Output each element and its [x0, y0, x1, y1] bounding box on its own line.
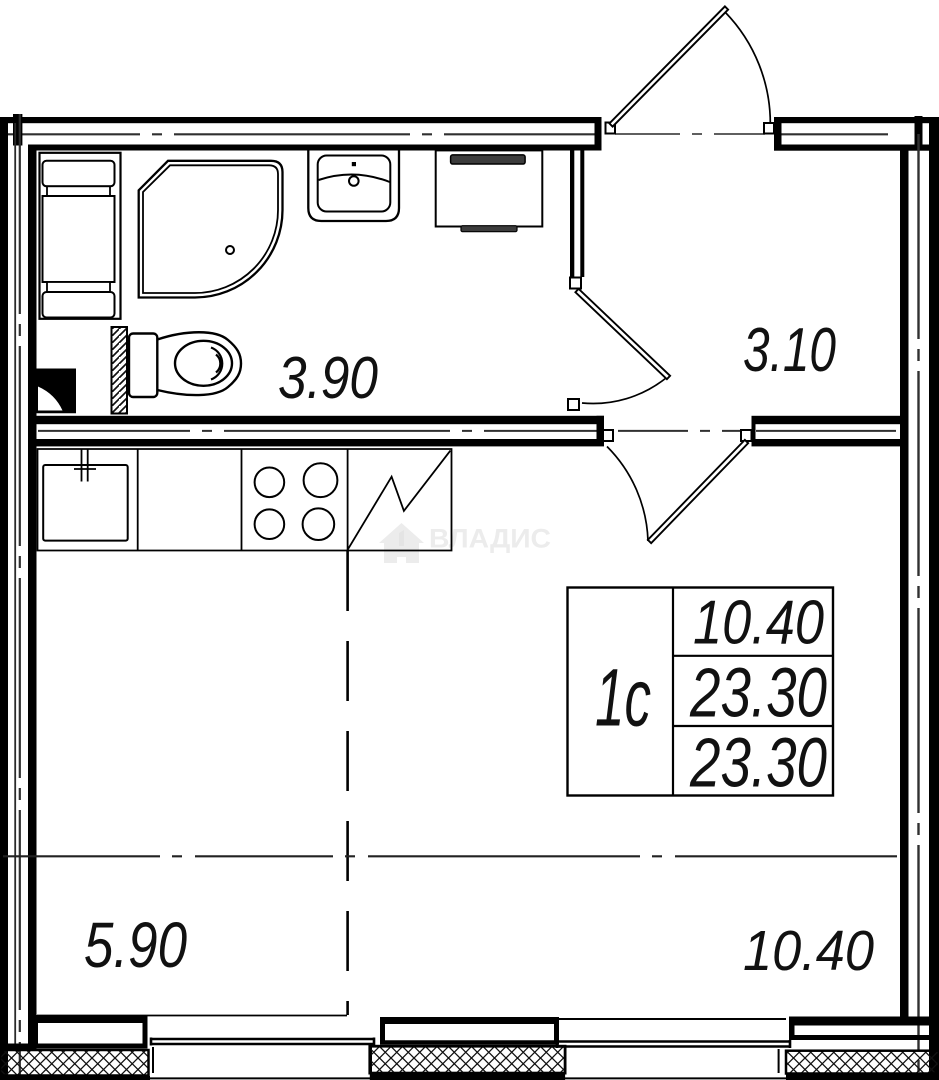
svg-text:10.40: 10.40 [693, 589, 824, 658]
svg-text:10.40: 10.40 [743, 919, 874, 983]
svg-text:23.30: 23.30 [689, 654, 827, 732]
svg-text:ВЛАДИС: ВЛАДИС [429, 524, 551, 554]
svg-text:1с: 1с [595, 653, 651, 744]
svg-text:3.90: 3.90 [278, 345, 378, 411]
svg-text:5.90: 5.90 [84, 909, 187, 981]
svg-text:23.30: 23.30 [689, 723, 827, 801]
svg-text:3.10: 3.10 [743, 316, 836, 385]
